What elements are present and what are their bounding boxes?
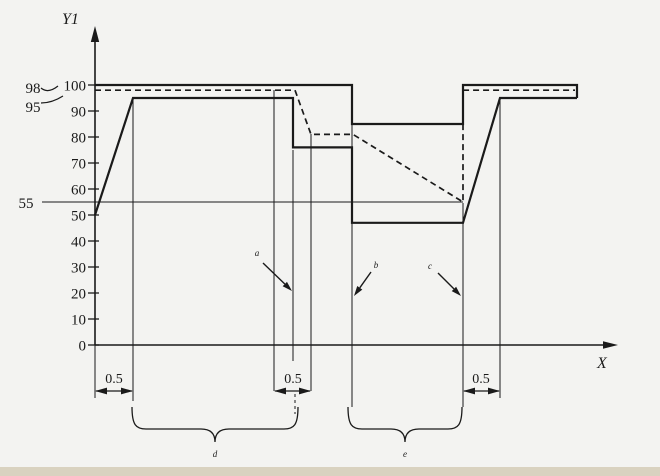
side-label-95: 95 (26, 100, 41, 116)
x-axis-label: X (597, 355, 607, 373)
y-tick-label-50: 50 (71, 209, 86, 225)
y-tick-label-70: 70 (71, 157, 86, 173)
y-tick-label-20: 20 (71, 287, 86, 303)
brace-label-d: d (213, 449, 218, 459)
callout-label-c: c (428, 261, 432, 271)
side-label-55: 55 (19, 196, 34, 212)
dimension-label-1: 0.5 (105, 372, 123, 387)
dimension-label-2: 0.5 (284, 372, 302, 387)
bottom-edge-strip (0, 467, 660, 476)
y-tick-label-0: 0 (79, 339, 87, 355)
side-label-98: 98 (26, 81, 41, 97)
brace-label-e: e (403, 449, 407, 459)
y-tick-label-90: 90 (71, 105, 86, 121)
y-tick-label-40: 40 (71, 235, 86, 251)
callout-label-b: b (374, 260, 379, 270)
y-tick-label-60: 60 (71, 183, 86, 199)
y-tick-label-80: 80 (71, 131, 86, 147)
y-tick-label-10: 10 (71, 313, 86, 329)
callout-label-a: a (255, 248, 260, 258)
y-tick-label-30: 30 (71, 261, 86, 277)
y-tick-label-100: 100 (64, 79, 87, 95)
dimension-label-3: 0.5 (472, 372, 490, 387)
chart-background (0, 0, 660, 476)
waveform-chart: 10090807060504030201009895550.50.50.5dea… (0, 0, 660, 476)
figure-canvas: 10090807060504030201009895550.50.50.5dea… (0, 0, 660, 476)
y-axis-label: Y1 (62, 11, 79, 29)
